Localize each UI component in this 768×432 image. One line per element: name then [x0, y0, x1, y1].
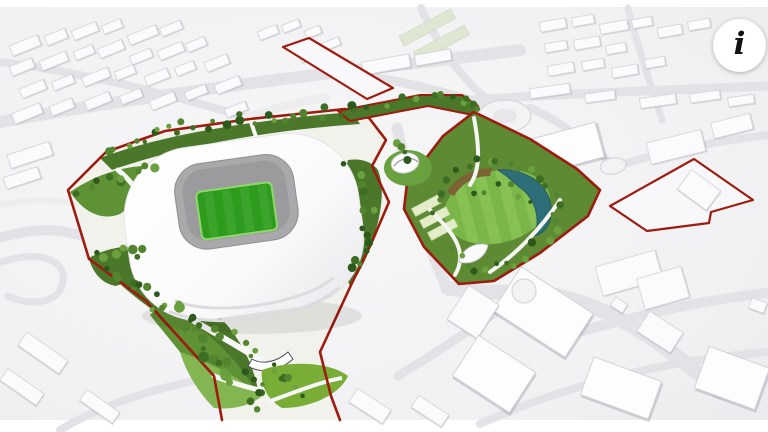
tree: [93, 177, 100, 184]
tree: [166, 124, 171, 129]
tree: [255, 389, 262, 396]
masterplan-render: i: [0, 0, 768, 432]
tree: [553, 218, 559, 224]
tree: [198, 333, 208, 343]
tree: [508, 181, 514, 187]
tree: [104, 266, 110, 272]
tree: [265, 111, 273, 119]
tree: [430, 210, 435, 215]
tree: [284, 374, 292, 382]
roundabout-north-island: [493, 109, 517, 123]
tree: [150, 163, 159, 172]
roundabout-south: [512, 279, 536, 303]
tree: [177, 118, 184, 125]
tree: [127, 143, 133, 149]
tree: [466, 263, 471, 268]
tree: [174, 130, 180, 136]
tree: [482, 190, 487, 195]
tree: [398, 143, 406, 151]
tree: [251, 377, 257, 383]
tree: [249, 354, 254, 359]
tree: [243, 340, 249, 346]
tree: [341, 161, 347, 167]
tree: [299, 109, 307, 117]
tree: [508, 161, 514, 167]
tree: [300, 394, 305, 399]
tree: [117, 175, 125, 183]
tree: [94, 250, 99, 255]
info-icon: i: [734, 29, 746, 60]
tree: [384, 103, 389, 108]
tree: [504, 261, 509, 266]
tree: [99, 253, 108, 262]
tree: [110, 147, 116, 153]
tree: [279, 376, 284, 381]
tree: [511, 263, 517, 269]
tree: [413, 96, 420, 103]
tree: [272, 368, 277, 373]
tree: [211, 325, 219, 333]
tree: [321, 103, 329, 111]
tree: [222, 357, 231, 366]
tree: [542, 183, 548, 189]
tree: [357, 171, 365, 179]
tree: [220, 368, 229, 377]
tree: [201, 346, 206, 351]
tree: [190, 125, 195, 130]
tree: [136, 281, 143, 288]
tree: [351, 108, 356, 113]
tree: [522, 256, 529, 263]
tree: [112, 250, 121, 259]
tree: [120, 245, 127, 252]
tree: [150, 307, 155, 312]
tree: [359, 187, 367, 195]
tree: [348, 263, 357, 272]
info-button[interactable]: i: [713, 19, 766, 72]
tree: [247, 397, 255, 405]
tree: [182, 323, 191, 332]
tree: [443, 176, 450, 183]
tree: [226, 379, 233, 386]
tree: [254, 406, 260, 412]
tree: [360, 207, 367, 214]
tree: [143, 140, 147, 144]
tree: [365, 239, 373, 247]
tree: [272, 362, 276, 366]
tree: [89, 184, 95, 190]
tree: [210, 119, 215, 124]
tree: [364, 248, 370, 254]
tree: [460, 253, 466, 259]
tree: [438, 190, 446, 198]
tree: [189, 314, 196, 321]
tree: [134, 138, 139, 143]
tree: [491, 158, 497, 164]
tree: [290, 113, 296, 119]
tree: [554, 193, 559, 198]
tree: [141, 162, 148, 169]
tree: [134, 254, 140, 260]
masterplan-scene: [0, 0, 768, 432]
tree: [154, 291, 160, 297]
tree: [432, 92, 438, 98]
tree: [205, 126, 212, 133]
tree: [453, 167, 459, 173]
tree: [450, 94, 455, 99]
tree: [282, 118, 288, 124]
tree: [73, 190, 79, 196]
tree: [528, 200, 532, 204]
tree: [482, 266, 489, 273]
tree: [528, 238, 536, 246]
tree: [357, 261, 362, 266]
tree: [437, 91, 444, 98]
tree: [517, 167, 521, 171]
tree: [272, 118, 277, 123]
tree: [252, 348, 258, 354]
tree: [371, 207, 378, 214]
tree: [253, 121, 258, 126]
tree: [364, 105, 369, 110]
tree: [215, 332, 224, 341]
tree: [128, 245, 138, 255]
tree: [398, 93, 405, 100]
tree: [494, 261, 499, 266]
tree: [471, 191, 477, 197]
tree: [106, 173, 113, 180]
tree: [236, 111, 242, 117]
tree: [496, 181, 502, 187]
tree: [216, 360, 223, 367]
tree: [136, 168, 142, 174]
tree: [546, 237, 554, 245]
tree: [470, 268, 477, 275]
tree: [536, 175, 544, 183]
tree: [198, 352, 209, 363]
tree: [176, 301, 183, 308]
tree: [143, 283, 151, 291]
tree: [528, 166, 535, 173]
tree: [242, 368, 249, 375]
tree: [551, 212, 555, 216]
tree: [556, 201, 564, 209]
tree: [403, 156, 411, 164]
tree: [112, 272, 120, 280]
tree: [554, 226, 562, 234]
tree: [138, 245, 146, 253]
tree: [364, 232, 371, 239]
tree: [403, 150, 408, 155]
tree: [319, 114, 325, 120]
tree: [154, 127, 159, 132]
tree: [196, 322, 202, 328]
tree: [474, 106, 480, 112]
tree: [467, 164, 473, 170]
tree: [339, 113, 344, 118]
tree: [293, 385, 298, 390]
tree: [260, 382, 265, 387]
tree: [359, 226, 365, 232]
tree: [159, 305, 165, 311]
tree: [463, 96, 469, 102]
tree: [223, 120, 232, 129]
tree: [515, 194, 521, 200]
tree: [473, 155, 480, 162]
tree: [448, 245, 454, 251]
tree: [231, 329, 237, 335]
